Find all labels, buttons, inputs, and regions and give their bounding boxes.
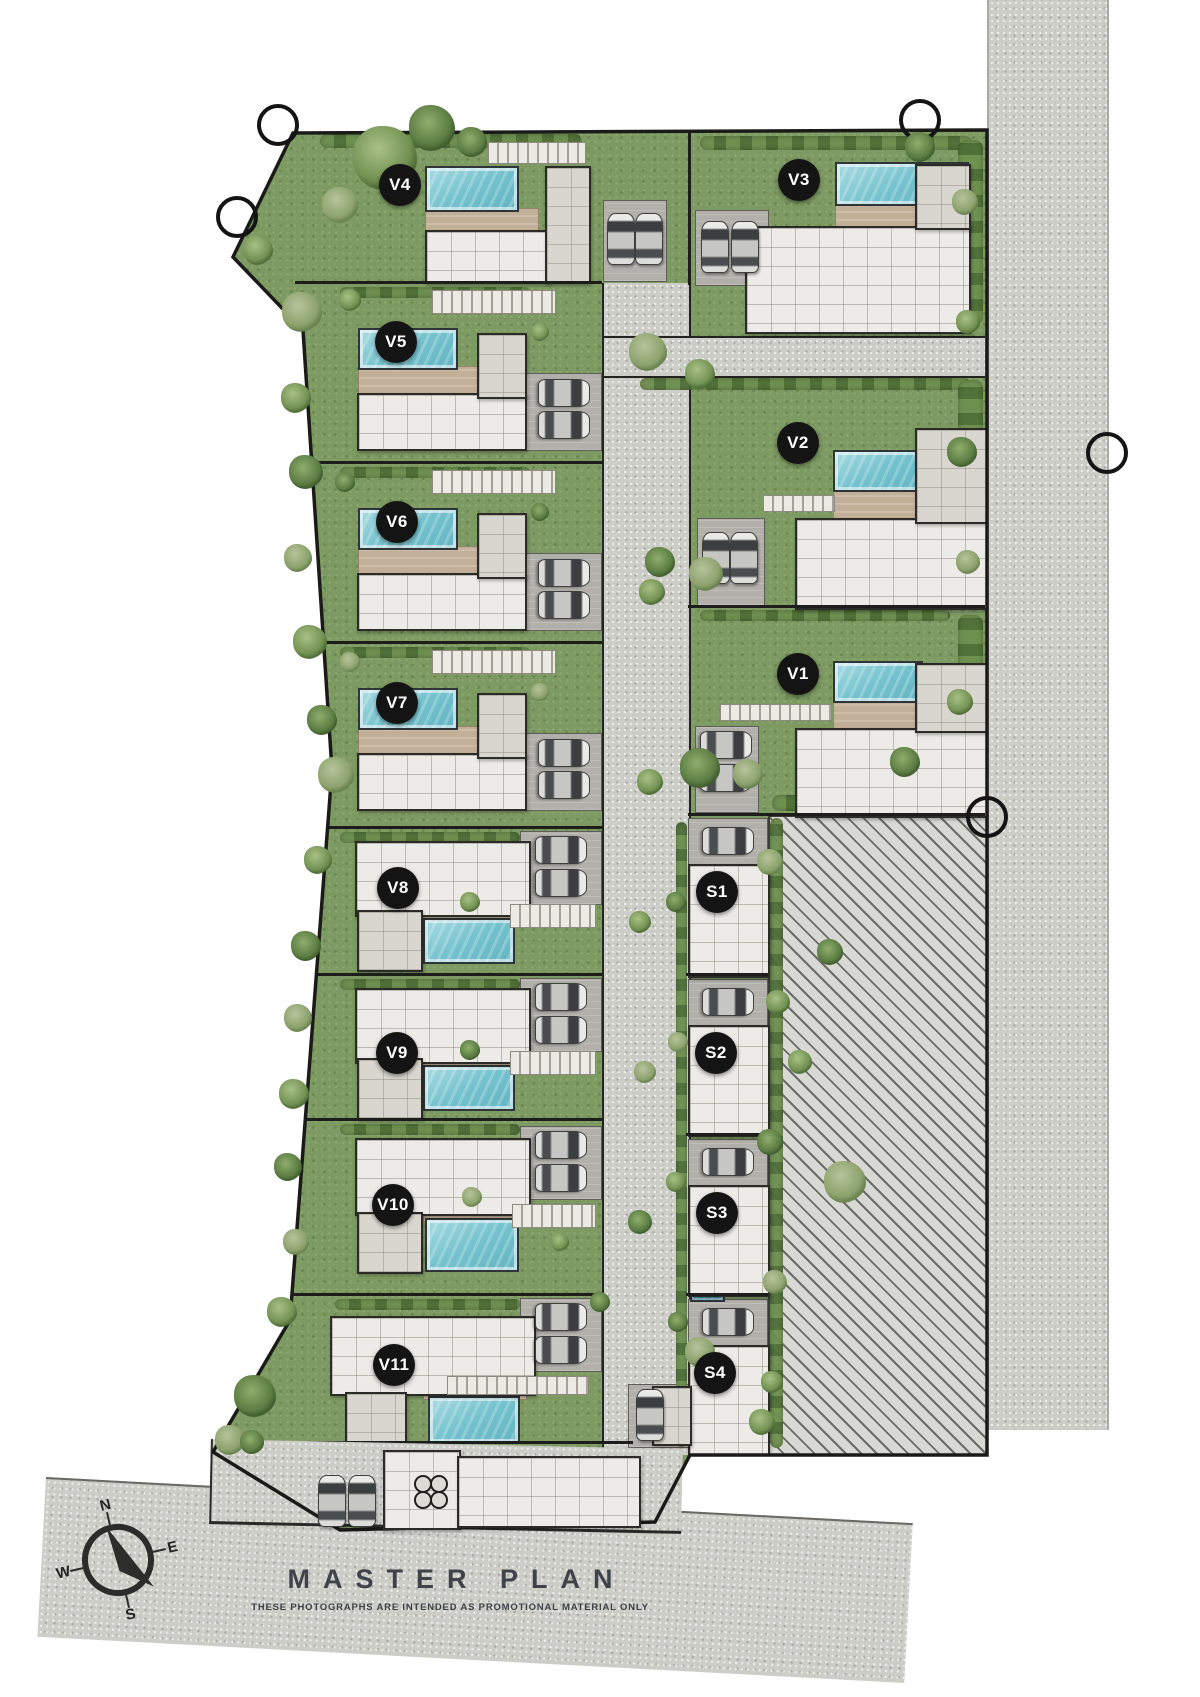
plot-divider: [688, 605, 985, 608]
tree: [905, 132, 935, 162]
plot-divider: [686, 1293, 768, 1296]
villa-house: [745, 226, 971, 334]
tree: [666, 1172, 686, 1192]
tree: [339, 289, 361, 311]
tree: [956, 310, 980, 334]
plot-divider: [300, 973, 602, 976]
car: [535, 869, 587, 897]
tree: [267, 1297, 297, 1327]
car: [607, 213, 635, 265]
stepping-path: [510, 1051, 596, 1075]
entrance-car: [348, 1475, 376, 1527]
tree: [733, 759, 763, 789]
unit-badge-v2[interactable]: V2: [777, 422, 819, 464]
tree: [531, 683, 549, 701]
tree: [637, 769, 663, 795]
tree: [629, 911, 651, 933]
swimming-pool: [425, 166, 519, 212]
tree: [291, 931, 321, 961]
tree: [283, 1229, 309, 1255]
tree: [628, 1210, 652, 1234]
villa-house: [795, 728, 989, 818]
unit-badge-v8[interactable]: V8: [377, 867, 419, 909]
tree: [318, 757, 354, 793]
tree: [666, 892, 686, 912]
tree: [284, 544, 312, 572]
tree: [890, 747, 920, 777]
car: [635, 213, 663, 265]
tree: [335, 472, 355, 492]
entrance-car: [318, 1475, 346, 1527]
car: [535, 1164, 587, 1192]
car: [535, 1131, 587, 1159]
tree: [634, 1061, 656, 1083]
plot-divider: [688, 133, 691, 285]
villa-wing: [477, 513, 527, 579]
tree: [284, 1004, 312, 1032]
tree: [531, 323, 549, 341]
swimming-pool: [428, 1396, 520, 1444]
tree: [274, 1153, 302, 1181]
tree: [460, 892, 480, 912]
tree: [689, 557, 723, 591]
plot-divider: [292, 1293, 602, 1296]
villa-wing: [345, 1392, 407, 1448]
unit-badge-s1[interactable]: S1: [696, 871, 738, 913]
tree: [282, 292, 322, 332]
hedge: [340, 1124, 520, 1135]
unit-badge-v10[interactable]: V10: [372, 1184, 414, 1226]
tree: [817, 939, 843, 965]
pool-terrace: [833, 488, 921, 522]
title-block: MASTER PLAN THESE PHOTOGRAPHS ARE INTEND…: [250, 1564, 650, 1613]
swimming-pool: [833, 450, 923, 492]
stepping-path: [512, 1204, 596, 1228]
hedge: [335, 1299, 520, 1310]
stepping-path: [447, 1376, 589, 1395]
planter-circle-icon: [430, 1491, 448, 1509]
tree: [340, 652, 360, 672]
tree: [457, 127, 487, 157]
tree: [766, 990, 790, 1014]
car: [535, 1336, 587, 1364]
future-development-parcel: [768, 815, 989, 1459]
unit-badge-s4[interactable]: S4: [694, 1352, 736, 1394]
tree: [462, 1187, 482, 1207]
car: [535, 836, 587, 864]
car: [702, 827, 754, 855]
car: [636, 1389, 664, 1441]
tree: [289, 455, 323, 489]
swimming-pool: [423, 918, 515, 964]
swimming-pool: [833, 661, 923, 703]
unit-badge-v3[interactable]: V3: [778, 159, 820, 201]
plot-divider: [295, 461, 602, 464]
unit-badge-v6[interactable]: V6: [376, 501, 418, 543]
car: [702, 988, 754, 1016]
tree: [947, 689, 973, 715]
tree: [668, 1032, 688, 1052]
tree: [645, 547, 675, 577]
unit-badge-v5[interactable]: V5: [375, 321, 417, 363]
car: [702, 1148, 754, 1176]
plan-title: MASTER PLAN: [250, 1564, 650, 1595]
tree: [788, 1050, 812, 1074]
stepping-path: [720, 704, 832, 721]
tree: [824, 1161, 866, 1203]
tree: [956, 550, 980, 574]
car: [535, 983, 587, 1011]
tree: [243, 235, 273, 265]
tree: [947, 437, 977, 467]
tree: [304, 846, 332, 874]
tree: [409, 105, 455, 151]
unit-badge-v4[interactable]: V4: [379, 164, 421, 206]
tree: [668, 1312, 688, 1332]
pool-terrace: [358, 546, 482, 576]
car: [538, 559, 590, 587]
tree: [749, 1409, 775, 1435]
swimming-pool: [423, 1065, 515, 1111]
tree: [763, 1270, 787, 1294]
stepping-path: [432, 650, 556, 674]
tree: [590, 1292, 610, 1312]
tree: [629, 333, 667, 371]
car: [730, 532, 758, 584]
unit-badge-v11[interactable]: V11: [373, 1344, 415, 1386]
tree: [293, 625, 327, 659]
tree: [757, 1129, 783, 1155]
plan-subtitle: THESE PHOTOGRAPHS ARE INTENDED AS PROMOT…: [250, 1602, 650, 1613]
car: [701, 221, 729, 273]
tree: [761, 1371, 783, 1393]
tree: [279, 1079, 309, 1109]
car: [538, 591, 590, 619]
right-road: [987, 0, 1109, 1430]
stepping-path: [510, 904, 596, 928]
car: [702, 1308, 754, 1336]
plot-divider: [688, 813, 985, 816]
villa-house: [357, 393, 527, 451]
plot-divider: [300, 826, 602, 829]
plot-divider: [686, 973, 768, 976]
car: [535, 1303, 587, 1331]
tree: [322, 187, 358, 223]
car: [731, 221, 759, 273]
car: [538, 771, 590, 799]
stepping-path: [432, 290, 556, 314]
unit-badge-v1[interactable]: V1: [777, 653, 819, 695]
villa-wing: [477, 333, 527, 399]
tree: [307, 705, 337, 735]
pool-terrace: [833, 699, 921, 731]
tree: [240, 1430, 264, 1454]
car: [538, 379, 590, 407]
stepping-path: [763, 495, 835, 512]
unit-badge-v7[interactable]: V7: [376, 682, 418, 724]
plot-divider: [295, 641, 602, 644]
villa-house: [357, 573, 527, 631]
tree: [281, 383, 311, 413]
plot-divider: [295, 281, 602, 284]
tree: [680, 748, 720, 788]
tree: [551, 1233, 569, 1251]
master-plan-canvas: V1V2V3V4V5V6V7V8V9V10V11S1S2S3S4 N E S W…: [0, 0, 1200, 1697]
swimming-pool: [425, 1218, 519, 1272]
villa-house: [425, 230, 551, 284]
villa-wing: [477, 693, 527, 759]
tree: [757, 849, 783, 875]
pool-terrace: [358, 366, 482, 396]
tree: [531, 503, 549, 521]
stepping-path: [488, 142, 586, 164]
hedge: [700, 610, 950, 621]
plot-divider: [686, 1133, 768, 1136]
tree: [234, 1375, 276, 1417]
tree: [460, 1040, 480, 1060]
tree: [685, 359, 715, 389]
pool-terrace: [358, 726, 482, 756]
car: [538, 411, 590, 439]
stepping-path: [432, 470, 556, 494]
unit-badge-v9[interactable]: V9: [376, 1032, 418, 1074]
amenity-building: [457, 1456, 641, 1528]
tree: [639, 579, 665, 605]
villa-house: [357, 753, 527, 811]
unit-badge-s2[interactable]: S2: [695, 1032, 737, 1074]
plot-divider: [298, 1118, 602, 1121]
villa-wing: [545, 166, 591, 284]
tree: [952, 189, 978, 215]
car: [535, 1016, 587, 1044]
unit-badge-s3[interactable]: S3: [696, 1192, 738, 1234]
car: [538, 739, 590, 767]
villa-wing: [357, 910, 423, 972]
